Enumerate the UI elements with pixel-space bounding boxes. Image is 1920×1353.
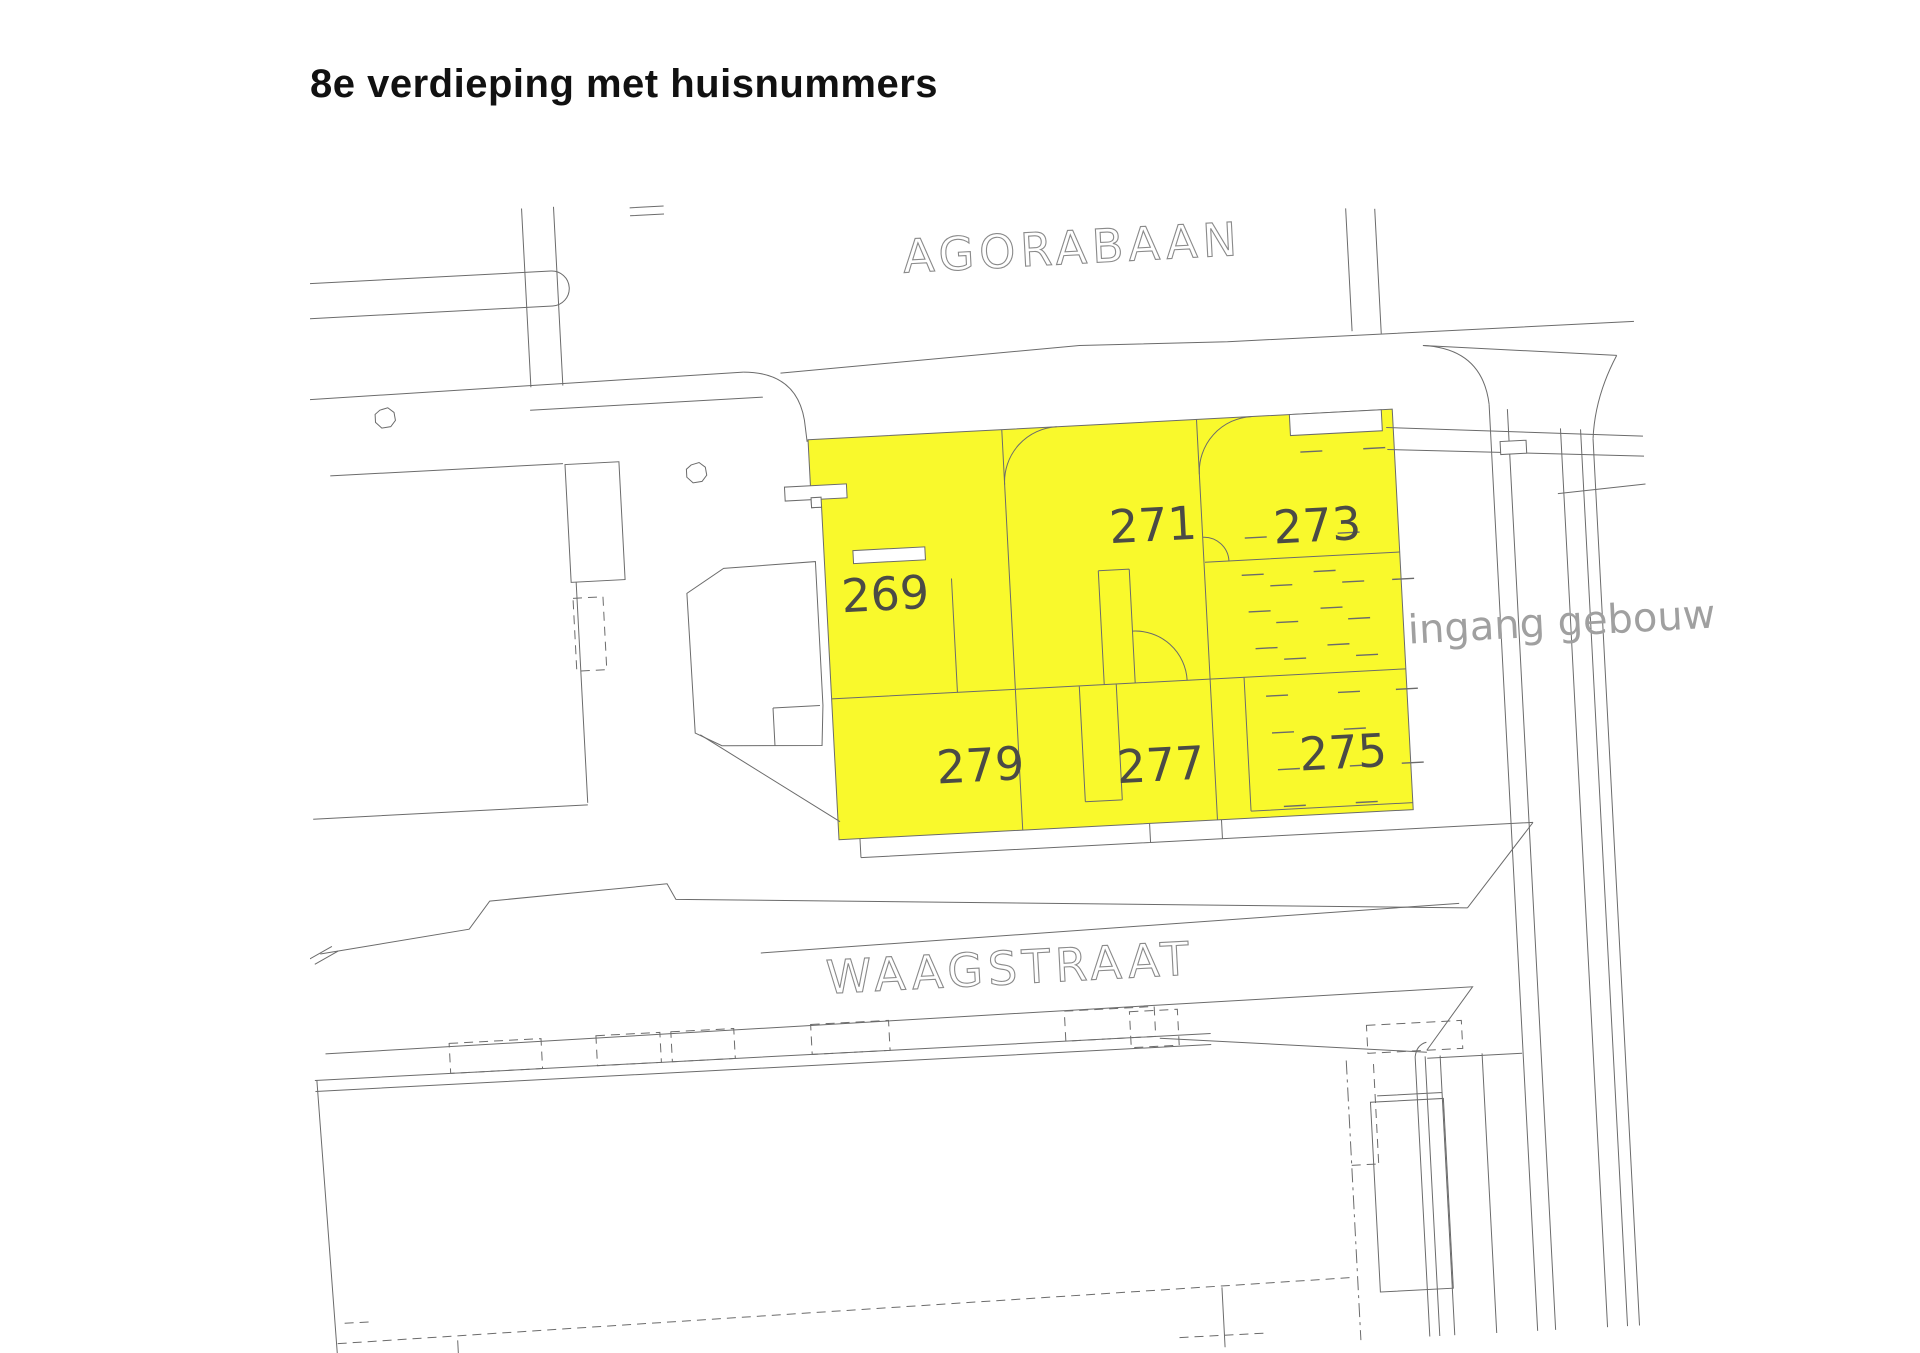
diverging-road-edge [1423,335,1617,365]
street-name-waagstraat: WAAGSTRAAT [825,931,1195,1004]
room-number-271: 271 [1108,496,1199,555]
road-stub-left [522,207,563,387]
floor-plan-page: 8e verdieping met huisnummers [0,0,1920,1353]
room-number-279: 279 [935,736,1026,795]
west-dashed-structure [573,597,607,671]
floor-plan-drawing: AGORABAAN WAAGSTRAAT ingang gebouw 269 2… [0,0,1920,1353]
right-street-lines [1489,399,1639,1331]
parcel-boundary [1346,1060,1361,1340]
bottom-dashed-lines [326,1064,1387,1353]
room-number-273: 273 [1272,496,1363,555]
street-corner-curve [743,369,807,445]
lower-facade [315,1022,1427,1110]
bottom-right-structure [1370,1098,1453,1292]
bottom-building-wall [317,1034,1225,1353]
west-block-edge [302,582,588,819]
road-stub-right [1346,207,1382,335]
street-name-agorabaan: AGORABAAN [902,212,1244,284]
break-symbol [308,946,339,965]
corner-curve-right-2 [1589,355,1621,438]
street-edge-north-right [780,316,1634,373]
edge-notch [811,497,822,508]
waagstraat-south-edge [325,987,1476,1108]
building-entrance-label: ingang gebouw [1407,592,1717,654]
west-building [565,462,625,583]
room-number-277: 277 [1115,736,1206,795]
room-number-275: 275 [1298,723,1389,782]
corner-curve-right-1 [1423,342,1489,407]
west-block-top [330,464,563,476]
entrance-walkway [1386,414,1646,502]
column-hexagon [686,462,707,483]
street-edge-north [291,372,744,401]
sidewalk-line [530,397,763,410]
column-hexagon [375,407,396,428]
chamfered-building [686,562,825,753]
bottom-right-streets [1374,1037,1536,1338]
road-stub-mid [630,206,664,216]
roof-notch [1289,410,1382,436]
entrance-marker [1500,440,1527,454]
room-number-269: 269 [840,565,931,624]
